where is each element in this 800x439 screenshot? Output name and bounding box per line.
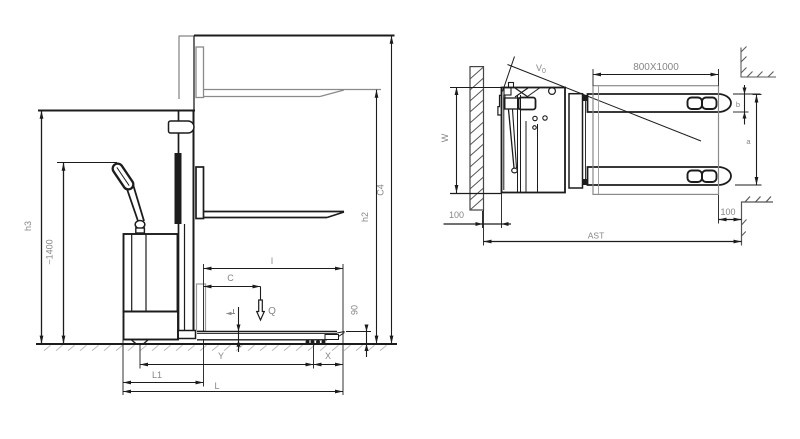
svg-text:L: L [214, 381, 219, 391]
svg-text:C4: C4 [376, 184, 386, 196]
svg-text:Q: Q [268, 306, 276, 317]
svg-text:a: a [746, 137, 751, 146]
svg-text:C: C [227, 273, 234, 283]
svg-text:~1400: ~1400 [45, 239, 55, 264]
svg-text:90: 90 [350, 305, 360, 315]
svg-text:b: b [736, 100, 740, 109]
svg-text:h3: h3 [23, 221, 33, 231]
svg-text:800X1000: 800X1000 [633, 62, 679, 73]
svg-text:100: 100 [449, 210, 464, 220]
svg-text:X: X [325, 351, 331, 361]
svg-text:0: 0 [542, 68, 546, 75]
svg-text:h2: h2 [360, 212, 370, 222]
svg-text:100: 100 [720, 207, 735, 217]
svg-text:L1: L1 [152, 370, 162, 380]
svg-text:AST: AST [588, 231, 605, 241]
svg-text:l: l [271, 256, 273, 266]
svg-text:Y: Y [218, 351, 224, 361]
svg-text:W: W [440, 133, 450, 142]
